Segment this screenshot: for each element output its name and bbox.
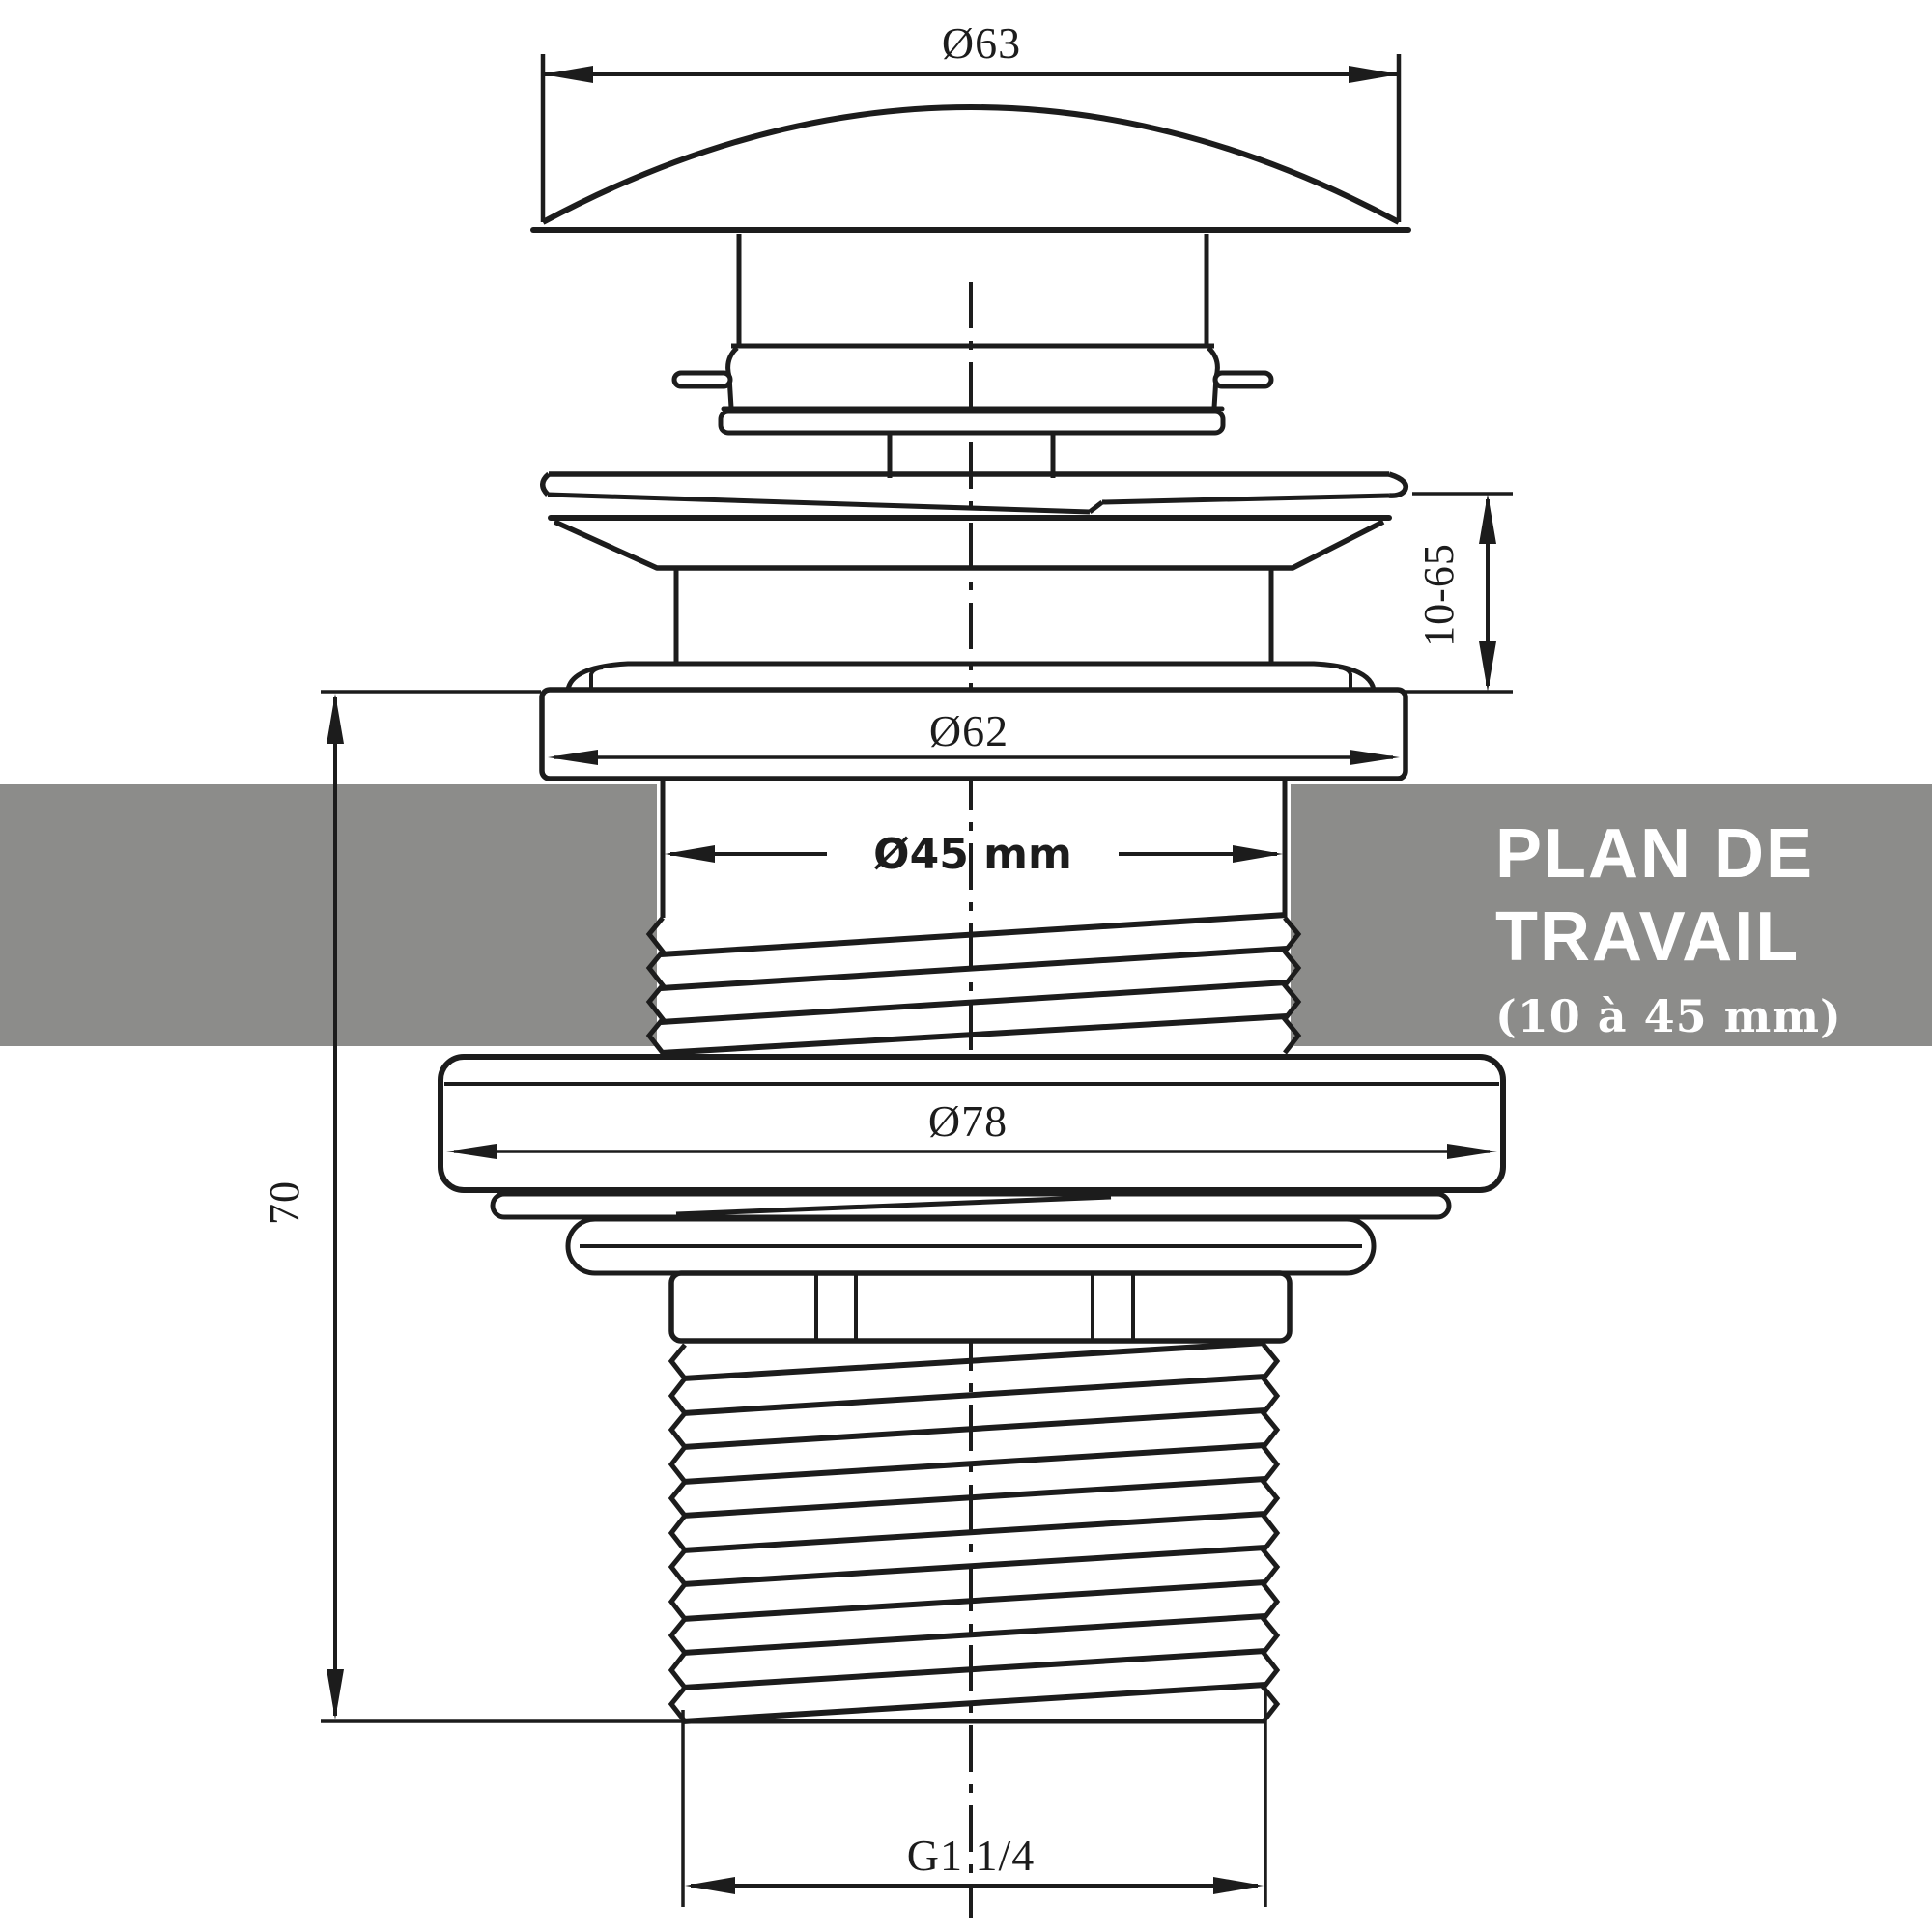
dim-label-plug-height-range: 10-65 <box>1415 543 1463 647</box>
dim-label-body-height: 70 <box>261 1180 308 1225</box>
work-surface-label-line2: TRAVAIL <box>1495 898 1800 976</box>
slotted-ring <box>671 1273 1290 1341</box>
work-surface-label-line1: PLAN DE <box>1495 815 1814 893</box>
dim-label-thread-size: G1 1/4 <box>907 1831 1036 1880</box>
dim-label-bore-diameter: Ø45 mm <box>873 830 1072 879</box>
dim-label-cap-diameter: Ø63 <box>942 18 1021 68</box>
rubber-gasket <box>493 1194 1449 1217</box>
technical-drawing: PLAN DE TRAVAIL (10 à 45 mm) Ø63 <box>0 0 1932 1932</box>
tube-cutout <box>657 784 1291 1046</box>
drawing-canvas: PLAN DE TRAVAIL (10 à 45 mm) Ø63 <box>0 0 1932 1932</box>
work-surface-band: PLAN DE TRAVAIL (10 à 45 mm) <box>0 784 1932 1046</box>
pin-right <box>1215 373 1271 386</box>
pin-left <box>674 373 730 386</box>
work-surface-label-line3: (10 à 45 mm) <box>1495 990 1842 1042</box>
dim-label-flange-diameter: Ø62 <box>929 706 1009 755</box>
dim-label-nut-diameter: Ø78 <box>928 1096 1008 1146</box>
lift-plate <box>721 412 1223 433</box>
